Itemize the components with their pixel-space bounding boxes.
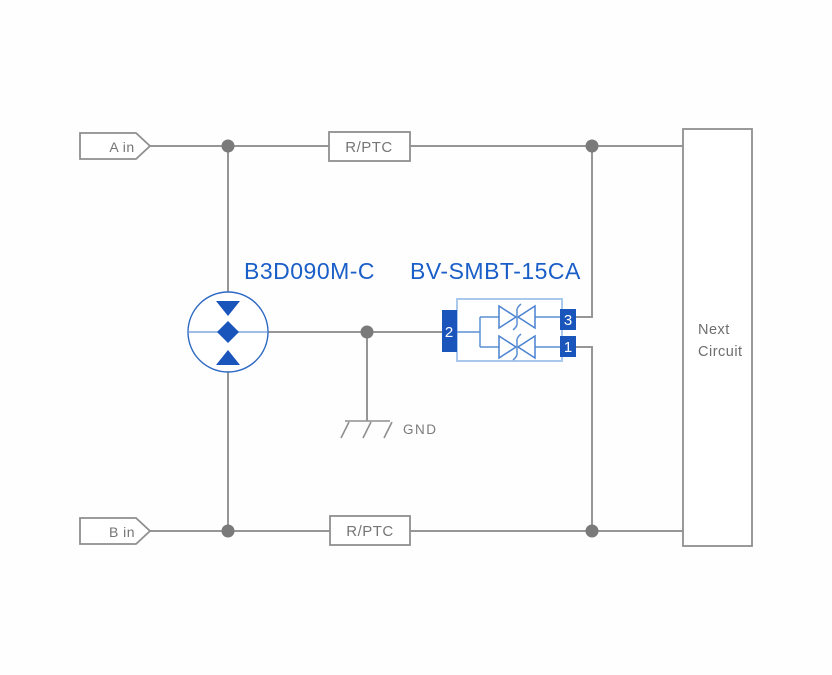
schematic-canvas: A in B in R/PTC R/PTC Next Circuit GND B… [0,0,832,675]
wire-pin3-lead [576,146,592,317]
tvs-pin1-number: 1 [564,339,572,356]
junction-dot-b-left [222,525,235,538]
input-b-label: B in [109,524,135,540]
tvs-pin3-number: 3 [564,312,572,329]
ground-hatch-3 [384,422,392,438]
input-b-tag: B in [80,518,150,544]
junction-dot-a-right [586,140,599,153]
next-circuit-box: Next Circuit [683,129,752,546]
input-a-tag: A in [80,133,150,159]
ground-label: GND [403,422,438,437]
tvs-part-number: BV-SMBT-15CA [410,258,581,284]
gas-discharge-tube [188,292,268,372]
rptc-bottom-label: R/PTC [346,523,394,540]
input-a-label: A in [109,139,134,155]
circuit-diagram: A in B in R/PTC R/PTC Next Circuit GND B… [0,0,832,675]
junction-dot-middle [361,326,374,339]
next-circuit-label-line2: Circuit [698,344,743,360]
junction-dot-b-right [586,525,599,538]
rptc-bottom: R/PTC [330,516,410,545]
next-circuit-label-line1: Next [698,322,730,338]
gas-tube-part-number: B3D090M-C [244,258,375,284]
ground-hatch-1 [341,422,349,438]
junction-dot-a-left [222,140,235,153]
ground-hatch-2 [363,422,371,438]
rptc-top-label: R/PTC [345,139,393,156]
ground-symbol: GND [341,421,438,438]
tvs-package: 2 3 1 [442,299,576,361]
tvs-pin2-number: 2 [445,324,453,341]
wire-pin1-lead [576,347,592,531]
rptc-top: R/PTC [329,132,410,161]
